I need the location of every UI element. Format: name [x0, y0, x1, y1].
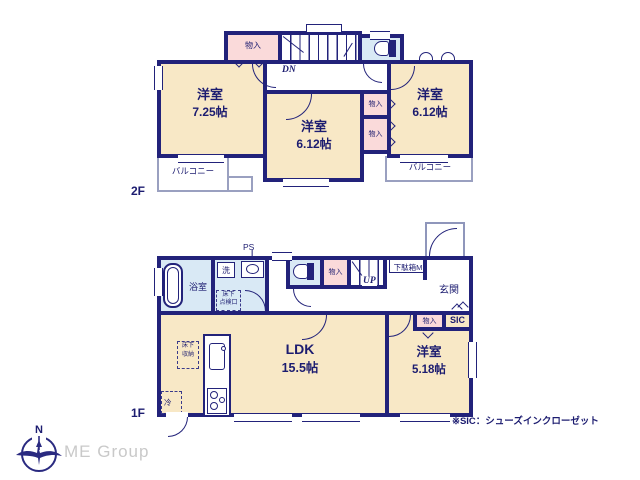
door-arc-kitchen-back — [168, 417, 188, 437]
ldk-size: 15.5帖 — [230, 360, 370, 378]
room-2f-left-label: 洋室 7.25帖 — [165, 86, 255, 121]
fridge-space: 冷 — [161, 391, 182, 414]
window-2f-roomright-top-b — [441, 52, 455, 61]
laundry-label: 洗 — [219, 265, 233, 276]
ldk-label: LDK 15.5帖 — [230, 340, 370, 377]
shoe-cabinet-label: 下駄箱M — [390, 262, 426, 273]
entrance-side-wall — [423, 256, 427, 280]
stove-burner-3 — [219, 397, 225, 403]
fridge-label: 冷 — [162, 398, 172, 407]
floor-2f-label: 2F — [131, 184, 145, 198]
toilet-2f-tank-icon — [389, 40, 396, 57]
window-1f-bath-left — [154, 268, 163, 296]
window-2f-left-wall — [154, 66, 163, 90]
stairs-2f-dn-label: DN — [282, 65, 296, 75]
closet-2f-b-label: 物入 — [362, 129, 389, 139]
room-2f-left-size: 7.25帖 — [165, 104, 255, 121]
underfloor-storage: 床下 収納 — [177, 341, 199, 369]
window-1f-ldk-bottom-a — [234, 413, 292, 422]
toilet-1f-tank-icon — [307, 263, 314, 280]
room-2f-mid-name: 洋室 — [273, 118, 355, 136]
storage-label-1: 床下 — [178, 342, 198, 351]
brand-logo-text: ME Group — [64, 442, 149, 462]
room-2f-left-name: 洋室 — [165, 86, 255, 104]
sic-label: SIC — [444, 315, 471, 325]
window-2f-stairtop — [306, 24, 342, 33]
bathroom-label: 浴室 — [183, 280, 213, 293]
storage-label-2: 収納 — [178, 351, 198, 360]
closet-hall-label: 物入 — [322, 267, 349, 277]
room-2f-right-size: 6.12帖 — [392, 104, 468, 121]
toilet-1f-bowl-icon — [293, 264, 308, 279]
sic-footnote: ※SIC：シューズインクローゼット — [452, 413, 599, 427]
floor-plan-canvas: バルコニー バルコニー 物入 DN 物入 物入 洋室 7.25帖 洋室 6.12… — [0, 0, 640, 480]
bedroom-1f-label: 洋室 5.18帖 — [391, 344, 467, 378]
ldk-name: LDK — [230, 340, 370, 360]
bedroom-1f-name: 洋室 — [391, 344, 467, 362]
window-2f-roommid-bottom — [283, 178, 329, 187]
bathtub-inner — [167, 267, 179, 304]
bedroom-1f-size: 5.18帖 — [391, 362, 467, 378]
floor-1f-label: 1F — [131, 406, 145, 420]
stairs-1f-up-label: UP — [362, 276, 377, 286]
hatch-label-1: 床下 — [217, 291, 240, 299]
toilet-2f-bowl-icon — [374, 41, 389, 56]
hatch-label-2: 点検口 — [217, 299, 240, 307]
stove-burner-2 — [210, 402, 218, 410]
ps-leader-line — [251, 250, 252, 259]
balcony-left-label: バルコニー — [161, 165, 225, 177]
window-2f-roomleft-bottom — [178, 154, 224, 163]
room-2f-mid-size: 6.12帖 — [273, 136, 355, 153]
underfloor-hatch: 床下 点検口 — [216, 290, 241, 311]
window-1f-bedroom-bottom — [400, 413, 450, 422]
closet-bedroom-label: 物入 — [416, 316, 443, 326]
compass-north-label: N — [33, 424, 45, 436]
window-1f-bedroom-right — [468, 342, 477, 378]
window-2f-roomright-bottom — [400, 154, 448, 163]
window-1f-washroom-top — [272, 252, 292, 261]
stove-burner-1 — [210, 391, 218, 399]
room-2f-mid-label: 洋室 6.12帖 — [273, 118, 355, 153]
kitchen-tap-icon — [221, 346, 226, 351]
bathtub-icon — [163, 263, 183, 308]
closet-2f-top-label: 物入 — [232, 40, 274, 51]
room-2f-right-label: 洋室 6.12帖 — [392, 86, 468, 121]
window-2f-roomright-top-a — [419, 52, 433, 61]
entrance-label: 玄関 — [432, 281, 466, 296]
vanity-sink-basin — [246, 264, 259, 274]
window-2f-toilet — [370, 31, 390, 40]
window-1f-ldk-bottom-b — [302, 413, 360, 422]
room-2f-right-name: 洋室 — [392, 86, 468, 104]
